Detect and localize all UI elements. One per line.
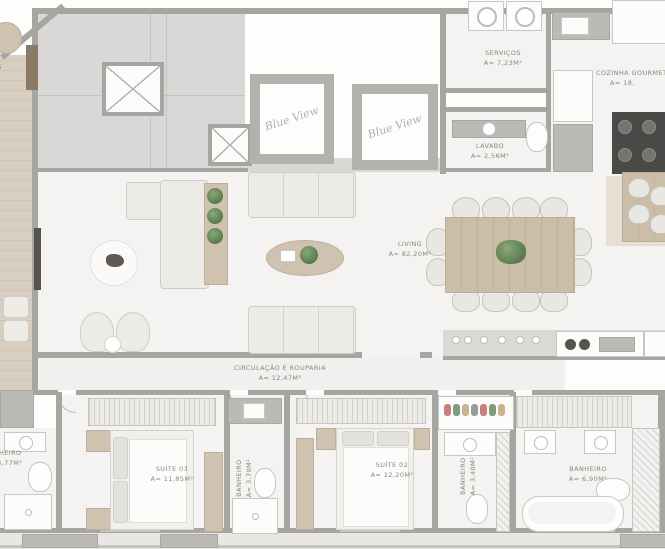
- counter-item: [464, 336, 472, 344]
- wall-suite: [56, 392, 62, 532]
- sink: [243, 403, 265, 419]
- sofa-l-section: [160, 180, 209, 289]
- plant: [207, 228, 223, 244]
- service-sink: [561, 17, 589, 35]
- bathtub: [522, 496, 624, 532]
- room-label-banheiro-master: BANHEIRO A= 6,90m²: [553, 464, 623, 484]
- island-chair: [628, 204, 650, 224]
- room-label-banheiro-340: BANHEIRO A= 3,40m²: [458, 444, 478, 508]
- island-chair: [650, 186, 665, 206]
- tray: [280, 250, 296, 262]
- tv-panel: [34, 228, 41, 290]
- sink: [594, 436, 608, 450]
- wall-suites-top: [456, 390, 514, 395]
- suite2-closet: [296, 398, 426, 424]
- planter: [22, 534, 98, 548]
- burner-icon: [642, 120, 656, 134]
- room-label-suite2: SUÍTE 02 A= 12,20m²: [357, 460, 427, 480]
- balcony-railing: [0, 545, 665, 548]
- wall-lavabo-bottom: [446, 168, 551, 172]
- planter: [620, 534, 665, 548]
- wall-suites-top: [324, 390, 438, 395]
- wall-suites-top: [532, 390, 665, 395]
- toilet: [254, 468, 276, 498]
- suite2-panel: [296, 438, 314, 530]
- wall-lavabo-top: [446, 107, 546, 112]
- burner-icon: [618, 120, 632, 134]
- master-vanity: [524, 430, 556, 454]
- counter-cabinet: [644, 331, 665, 357]
- wall-suite: [284, 392, 290, 532]
- island-chair: [650, 214, 665, 234]
- wall-core-bottom: [38, 168, 248, 172]
- shoe-icon: [453, 404, 460, 416]
- pillow: [377, 431, 409, 446]
- wall-block-left: [0, 390, 34, 428]
- armchair: [116, 312, 150, 352]
- knob-icon: [565, 339, 576, 350]
- pillow: [342, 431, 374, 446]
- shaft-2: [208, 124, 252, 166]
- counter-item: [452, 336, 460, 344]
- room-label-lavabo: LAVABO A= 2,56m²: [455, 141, 525, 161]
- room-label-banheiro-left: BANHEIRO A= 3,77m²: [0, 448, 44, 468]
- bathtub-basin: [528, 502, 616, 524]
- elevator-logo: Blue View: [264, 106, 320, 133]
- wall-kitchen-left: [546, 8, 551, 172]
- room-label-partial: DELOS m²: [0, 62, 28, 82]
- shoe-icon: [471, 404, 478, 416]
- knob-icon: [579, 339, 590, 350]
- sofa: [248, 306, 356, 354]
- counter-sink-cooktop: [556, 331, 644, 357]
- shoe-icon: [462, 404, 469, 416]
- floor-plan: Blue View Blue View: [0, 0, 665, 549]
- washer: [468, 1, 504, 31]
- bath-mid-vanity: [228, 398, 282, 424]
- stair-line: [166, 14, 167, 168]
- suite3-closet: [88, 398, 216, 426]
- nightstand: [86, 508, 112, 530]
- dining-centerpiece-plant: [496, 240, 526, 264]
- washer-door-icon: [477, 7, 497, 27]
- dryer: [506, 1, 542, 31]
- counter-grid: [599, 337, 635, 352]
- sink: [534, 436, 548, 450]
- burner-icon: [618, 148, 632, 162]
- duct-shaft: [553, 70, 593, 122]
- nightstand: [414, 428, 430, 450]
- wall-suites-top: [248, 390, 306, 395]
- shower-glass: [496, 432, 510, 532]
- kitchen-top-counter: [612, 0, 665, 44]
- range-cooktop: [612, 112, 665, 174]
- elevator-1: Blue View: [250, 74, 334, 164]
- coffee-table-decor: [106, 254, 124, 267]
- room-label-servicos: SERVIÇOS A= 7,23m²: [468, 48, 538, 68]
- counter-item: [480, 336, 488, 344]
- counter-item: [498, 336, 506, 344]
- nightstand: [86, 430, 112, 452]
- shoe-icon: [498, 404, 505, 416]
- drain-icon: [25, 509, 32, 516]
- room-label-circulacao: CIRCULAÇÃO E ROUPARIA A= 12,47m²: [228, 363, 332, 383]
- service-counter: [552, 12, 610, 40]
- pillow: [113, 481, 128, 523]
- shoe-icon: [480, 404, 487, 416]
- room-label-banheiro-mid: BANHEIRO A= 3,70m²: [234, 446, 254, 510]
- counter-item: [532, 336, 540, 344]
- shower: [4, 494, 52, 530]
- lavabo-sink: [482, 122, 496, 136]
- room-label-cozinha: COZINHA GOURMET A= 18,: [596, 68, 665, 88]
- pillow: [113, 437, 128, 479]
- dryer-door-icon: [515, 7, 535, 27]
- stair-shaft: [102, 62, 164, 116]
- elevator-logo: Blue View: [367, 114, 423, 141]
- wall-living-corridor-2: [420, 352, 432, 358]
- duvet: [343, 447, 409, 527]
- terrace-table: [0, 22, 22, 54]
- lavabo-toilet: [526, 122, 548, 152]
- room-label-living: LIVING A= 82,20m²: [375, 239, 445, 259]
- nightstand: [316, 428, 336, 450]
- burner-icon: [642, 148, 656, 162]
- drain-icon: [252, 513, 259, 520]
- master-closet: [516, 396, 632, 428]
- counter-item: [516, 336, 524, 344]
- shoe-icon: [444, 404, 451, 416]
- plant: [207, 208, 223, 224]
- plant: [300, 246, 318, 264]
- island-chair: [628, 178, 650, 198]
- master-shower: [632, 428, 660, 532]
- kitchen-cabinet: [553, 124, 593, 172]
- elevator-2: Blue View: [352, 84, 438, 170]
- wall-servicos-bottom: [446, 88, 546, 93]
- plant: [207, 188, 223, 204]
- side-table: [104, 336, 121, 353]
- planter: [160, 534, 218, 548]
- terrace-chair: [3, 296, 29, 318]
- terrace-chair: [3, 320, 29, 342]
- master-vanity: [584, 430, 616, 454]
- wall-suites-top: [76, 390, 230, 395]
- shoe-icon: [489, 404, 496, 416]
- sofa: [248, 172, 356, 218]
- room-label-suite3: SUÍTE 03 A= 11,85m²: [137, 464, 207, 484]
